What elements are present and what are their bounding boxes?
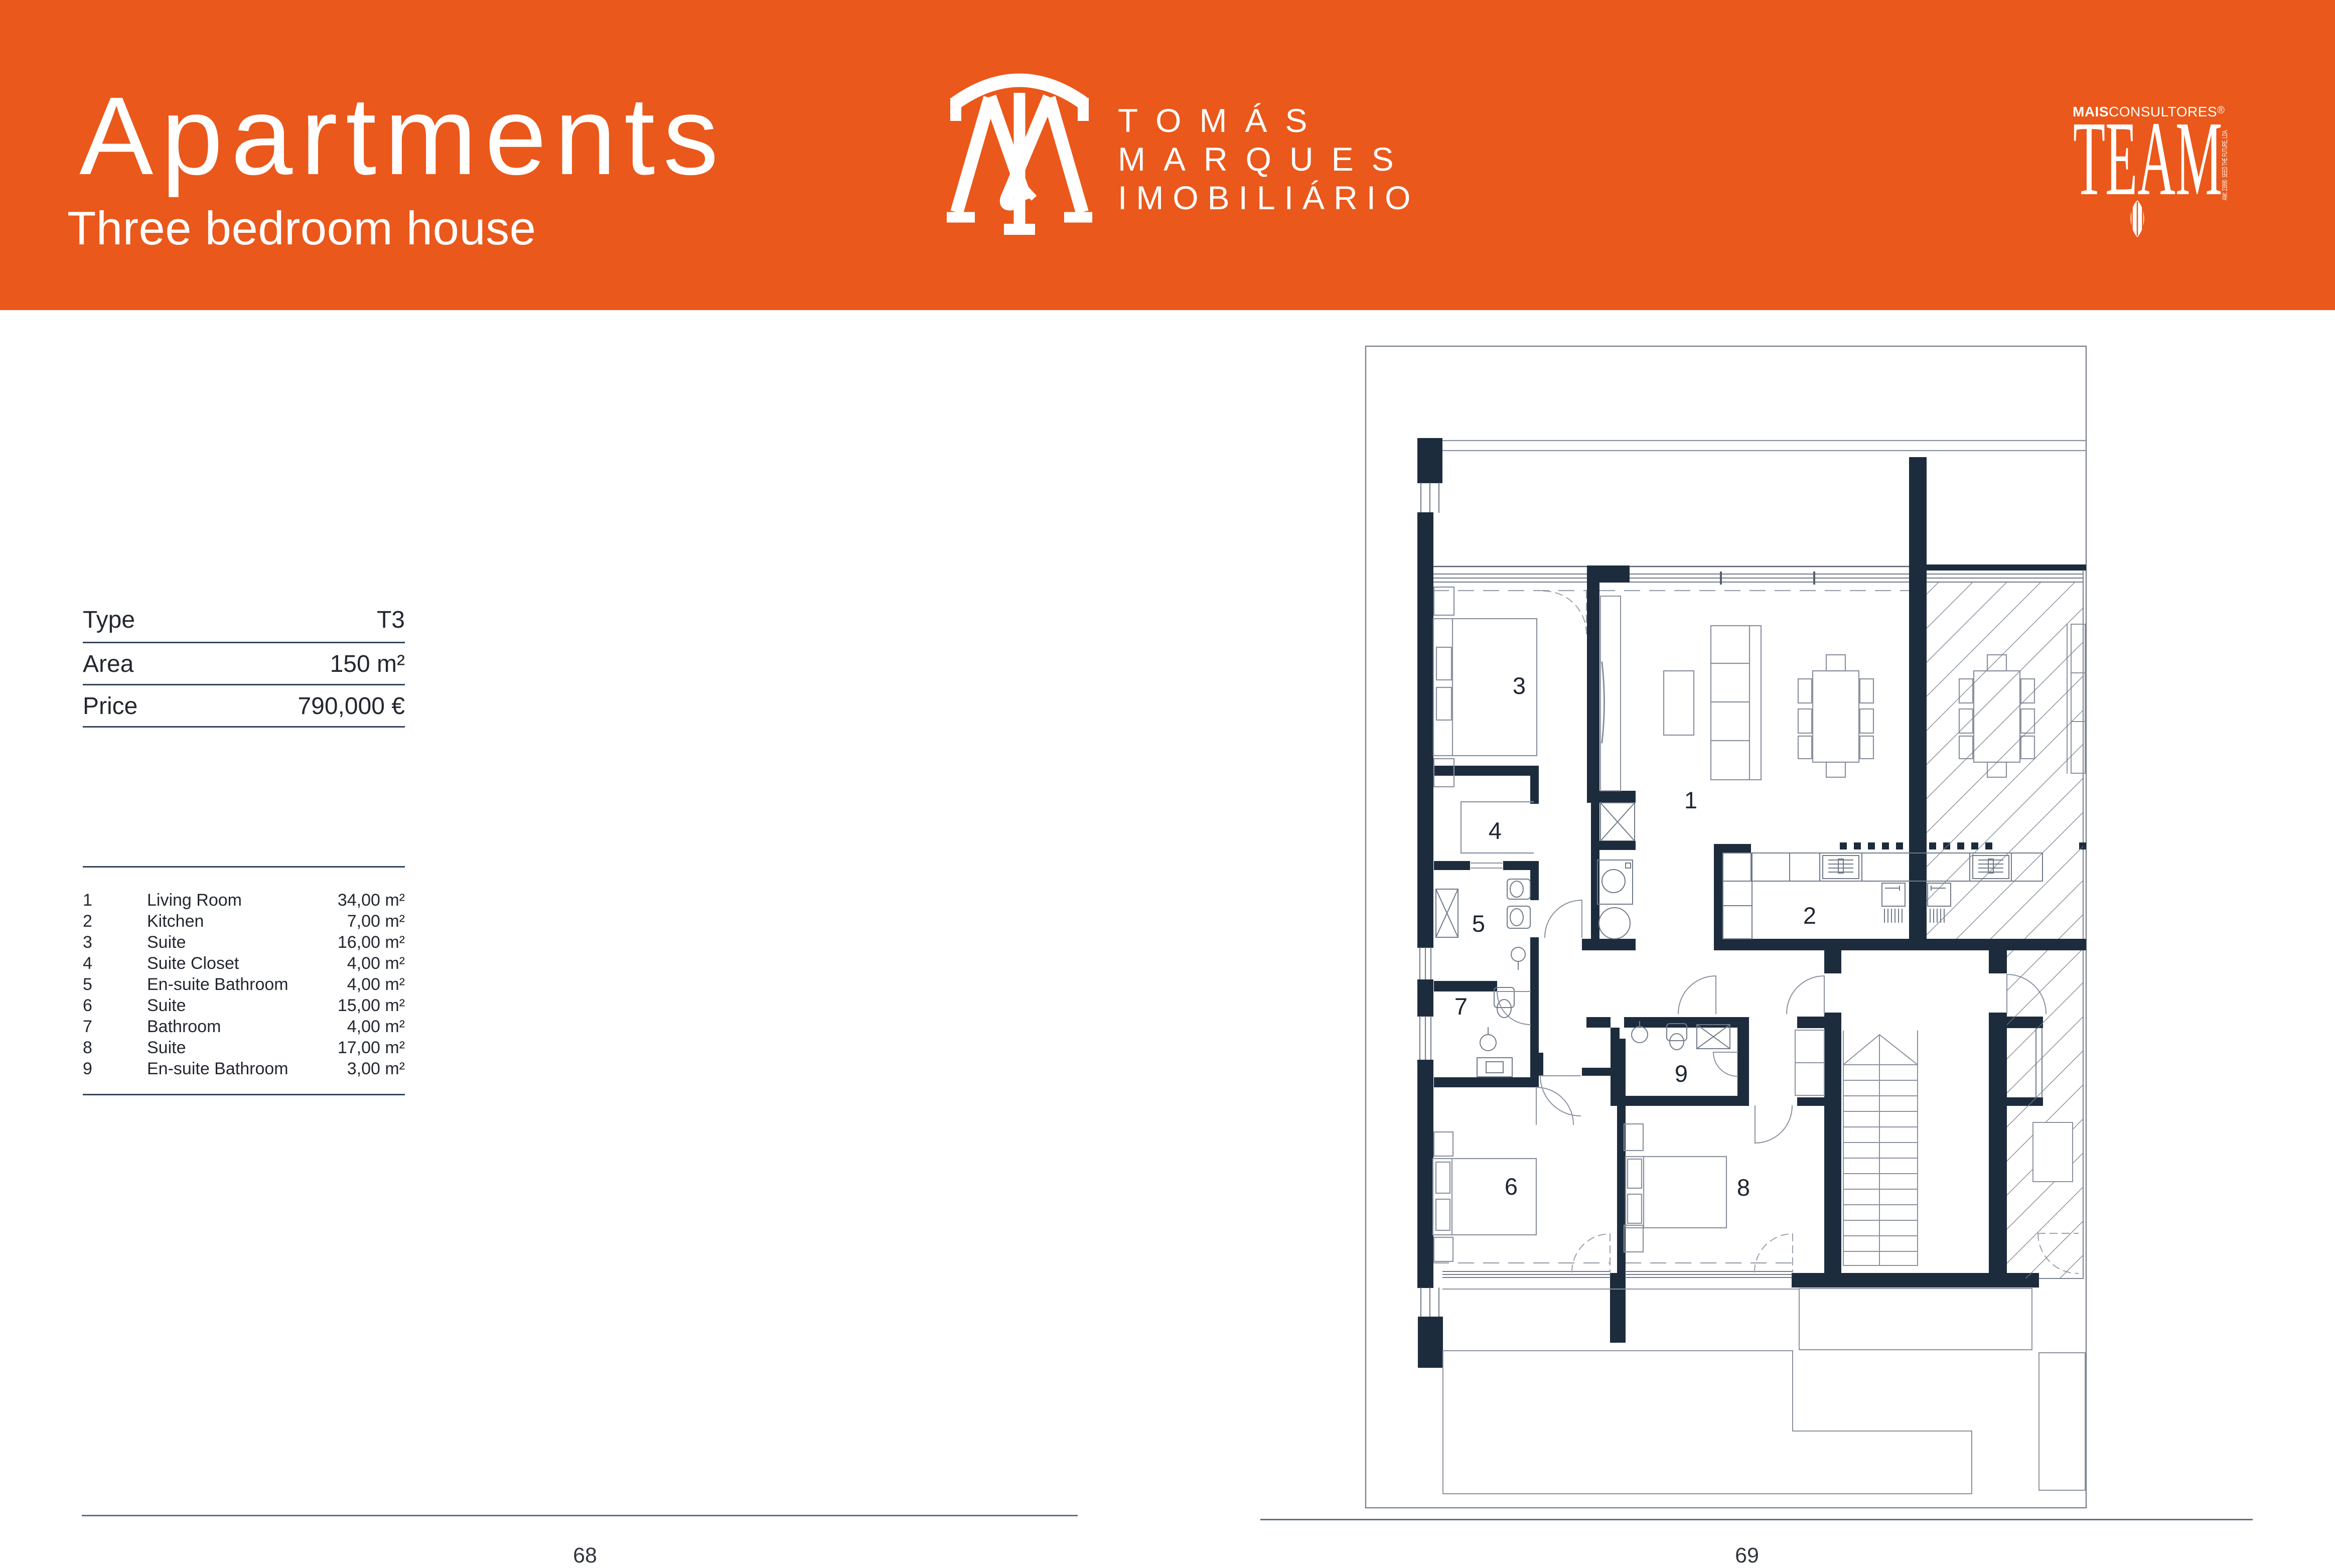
svg-text:7: 7 [1454,993,1468,1020]
svg-text:8: 8 [1737,1174,1750,1201]
svg-text:9: 9 [1675,1060,1688,1087]
svg-text:1: 1 [1684,787,1697,813]
svg-text:6: 6 [1505,1173,1518,1200]
svg-text:2: 2 [1803,902,1816,929]
svg-text:3: 3 [1513,672,1526,699]
svg-text:4: 4 [1489,817,1502,844]
svg-text:5: 5 [1472,910,1485,937]
